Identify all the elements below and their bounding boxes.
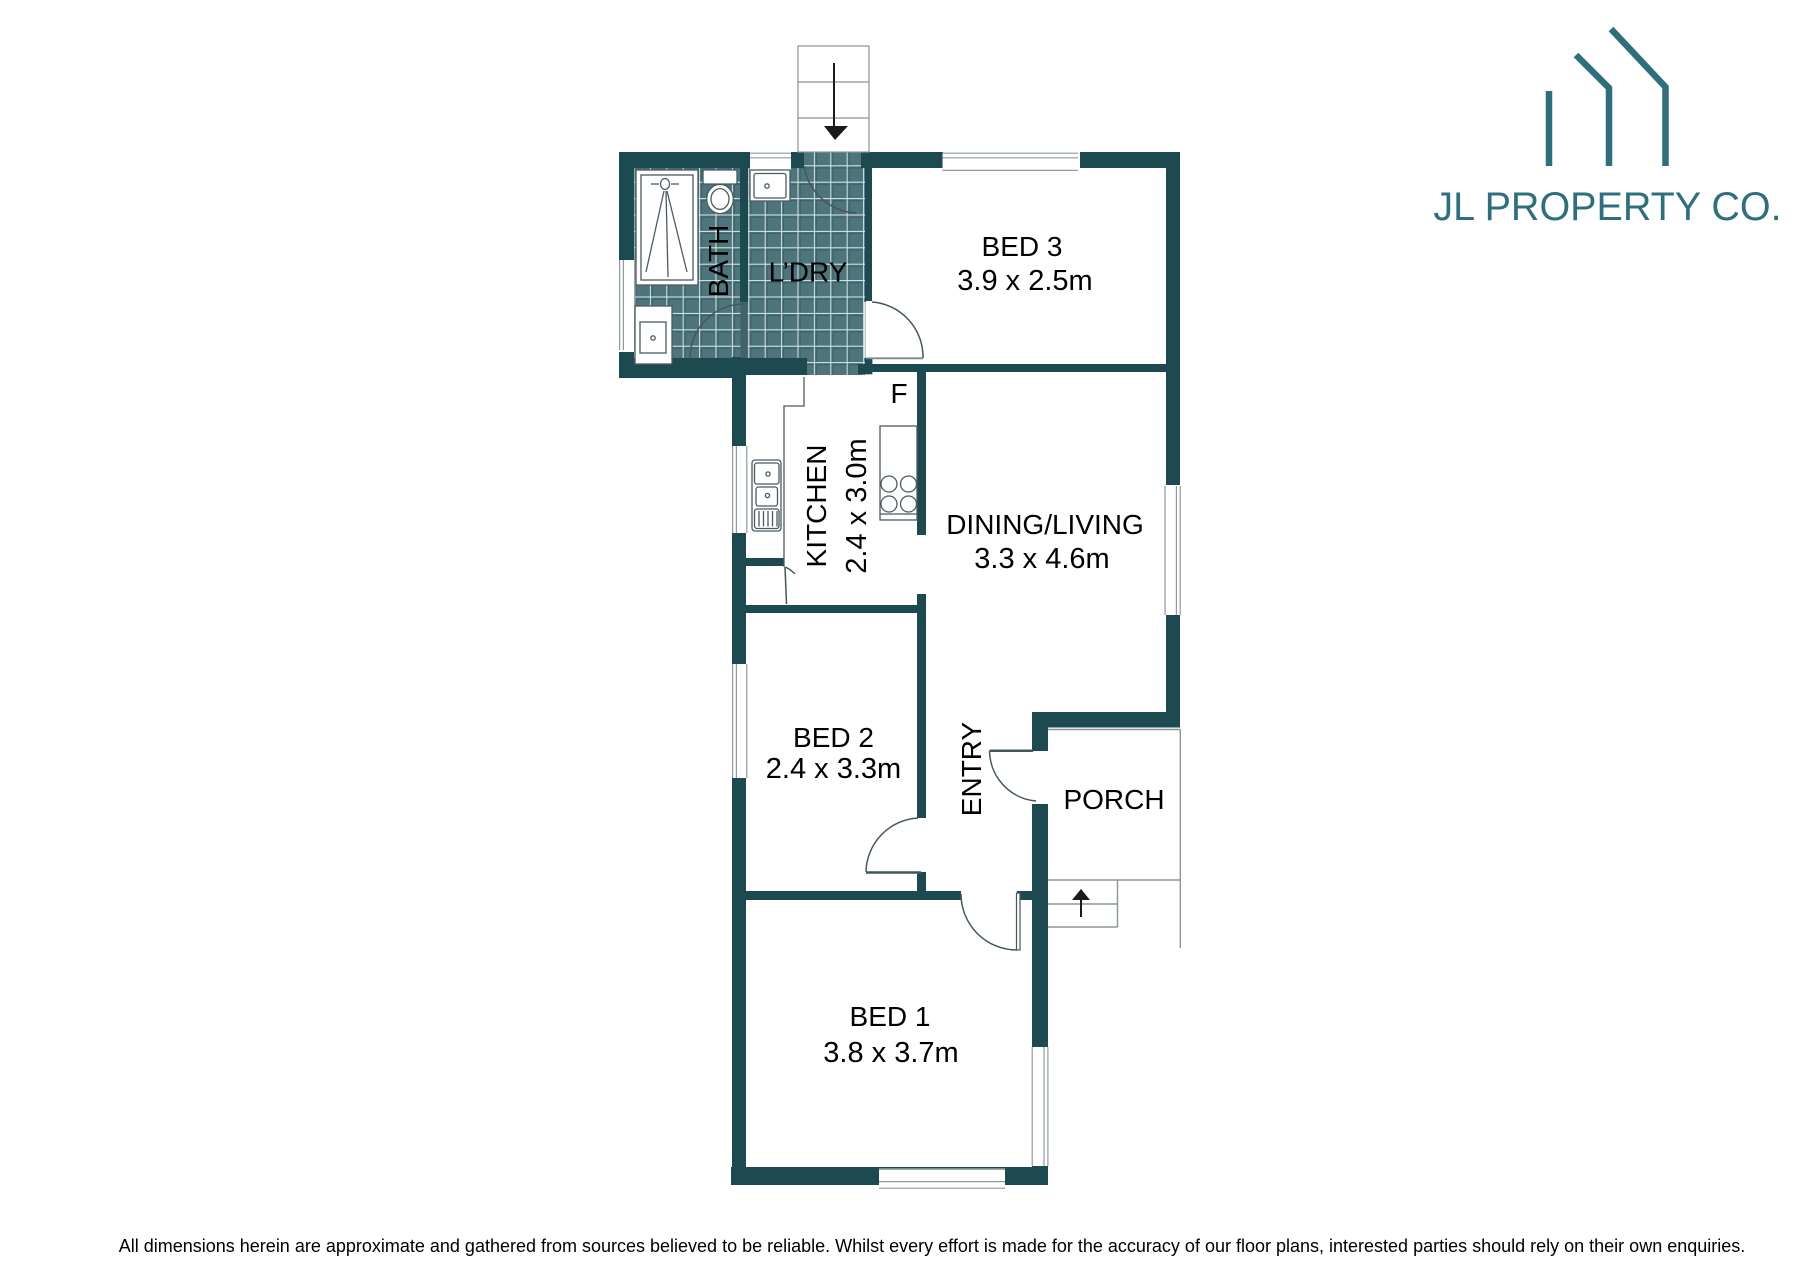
svg-text:BED 3: BED 3 xyxy=(982,231,1063,262)
svg-text:3.8 x 3.7m: 3.8 x 3.7m xyxy=(823,1037,958,1069)
svg-text:KITCHEN: KITCHEN xyxy=(801,445,832,568)
svg-text:3.9 x 2.5m: 3.9 x 2.5m xyxy=(957,265,1092,297)
svg-text:DINING/LIVING: DINING/LIVING xyxy=(946,509,1144,540)
svg-text:2.4 x 3.3m: 2.4 x 3.3m xyxy=(766,753,901,785)
svg-text:BED 1: BED 1 xyxy=(850,1001,931,1032)
svg-text:PORCH: PORCH xyxy=(1063,784,1164,815)
svg-text:L’DRY: L’DRY xyxy=(769,257,848,288)
svg-text:BATH: BATH xyxy=(703,225,734,298)
svg-text:F: F xyxy=(890,378,907,409)
svg-text:JL PROPERTY CO.: JL PROPERTY CO. xyxy=(1433,185,1781,229)
svg-text:BED 2: BED 2 xyxy=(793,722,874,753)
svg-text:2.4 x 3.0m: 2.4 x 3.0m xyxy=(841,438,873,573)
svg-text:3.3 x 4.6m: 3.3 x 4.6m xyxy=(974,543,1109,575)
svg-text:All dimensions herein are appr: All dimensions herein are approximate an… xyxy=(119,1236,1746,1256)
svg-text:ENTRY: ENTRY xyxy=(956,721,987,816)
